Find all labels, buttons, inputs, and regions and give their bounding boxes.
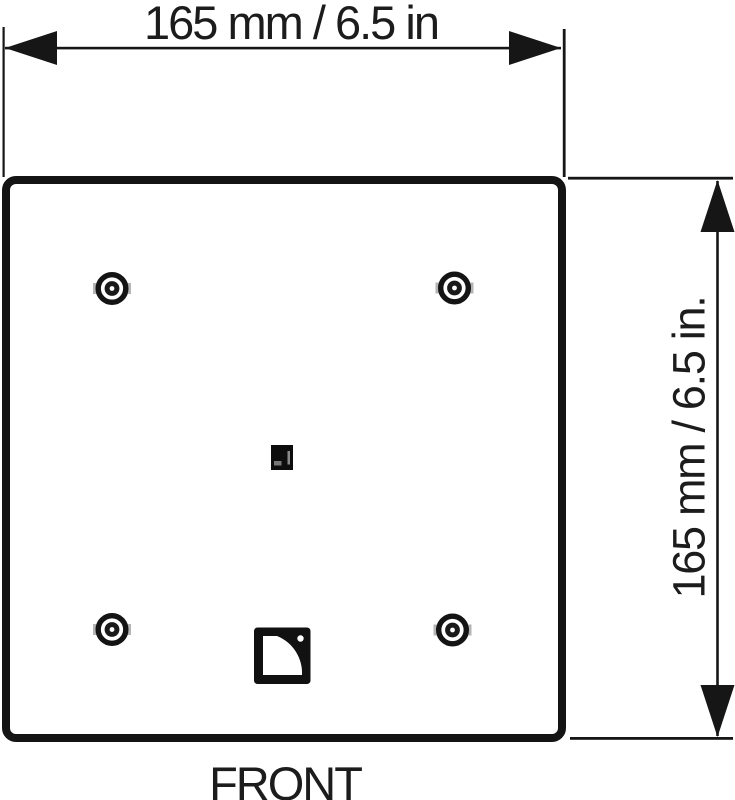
svg-text:165 mm / 6.5 in: 165 mm / 6.5 in [144, 0, 438, 49]
svg-text:FRONT: FRONT [209, 757, 362, 800]
svg-text:165 mm / 6.5 in.: 165 mm / 6.5 in. [664, 297, 715, 599]
